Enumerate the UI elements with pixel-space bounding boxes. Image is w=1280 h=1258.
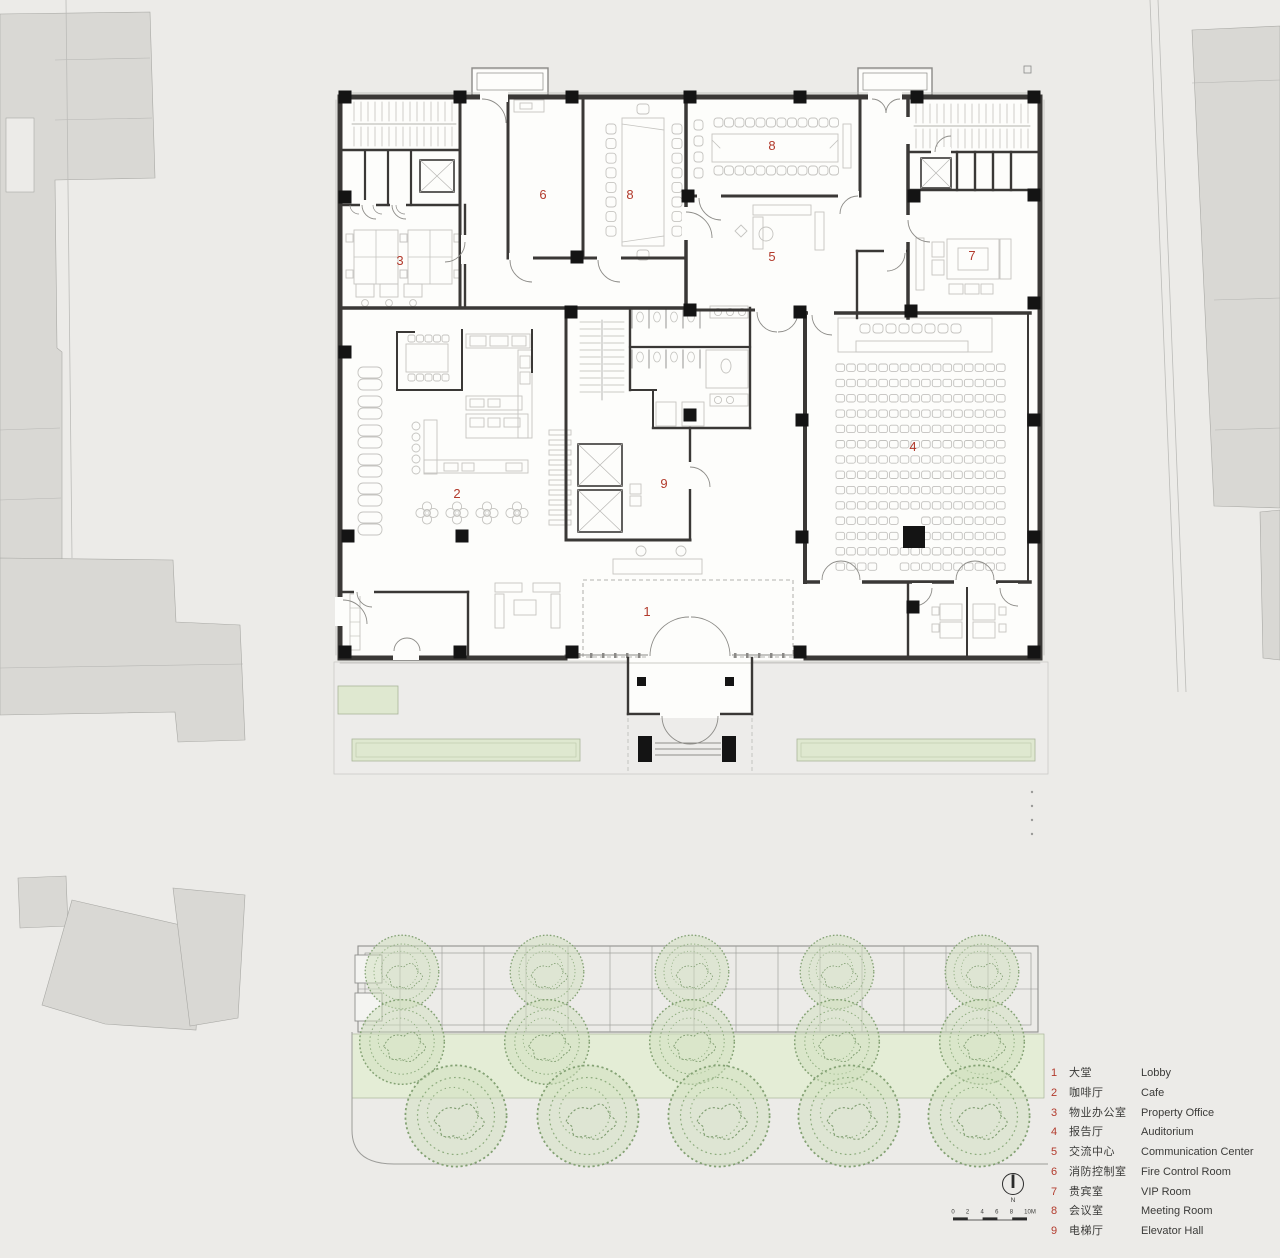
legend-row: 1 大堂 Lobby xyxy=(1051,1064,1266,1084)
legend-zh: 贵宾室 xyxy=(1069,1183,1141,1203)
legend: 1 大堂 Lobby 2 咖啡厅 Cafe 3 物业办公室 Property O… xyxy=(1051,1064,1266,1242)
legend-zh: 会议室 xyxy=(1069,1202,1141,1222)
tree-icon xyxy=(668,1065,769,1166)
room-label-meeting-b: 8 xyxy=(768,138,775,153)
site-plan-drawing: 1 2 3 4 5 6 7 8 8 9 N 0 2 4 6 8 10M 1 大堂… xyxy=(0,0,1280,1258)
tree-icon xyxy=(798,1065,899,1166)
legend-en: Cafe xyxy=(1141,1084,1266,1104)
legend-number: 5 xyxy=(1051,1143,1069,1163)
legend-number: 8 xyxy=(1051,1202,1069,1222)
room-label-auditorium: 4 xyxy=(909,439,916,454)
tree-icon xyxy=(405,1065,506,1166)
legend-number: 4 xyxy=(1051,1123,1069,1143)
legend-number: 6 xyxy=(1051,1163,1069,1183)
legend-row: 8 会议室 Meeting Room xyxy=(1051,1202,1266,1222)
legend-zh: 报告厅 xyxy=(1069,1123,1141,1143)
room-label-cafe: 2 xyxy=(453,486,460,501)
legend-row: 5 交流中心 Communication Center xyxy=(1051,1143,1266,1163)
legend-number: 3 xyxy=(1051,1104,1069,1124)
legend-number: 7 xyxy=(1051,1183,1069,1203)
room-label-fire-control: 6 xyxy=(539,187,546,202)
legend-row: 3 物业办公室 Property Office xyxy=(1051,1104,1266,1124)
tree-icon xyxy=(360,1000,445,1085)
legend-row: 4 报告厅 Auditorium xyxy=(1051,1123,1266,1143)
room-label-communication: 5 xyxy=(768,249,775,264)
legend-row: 7 贵宾室 VIP Room xyxy=(1051,1183,1266,1203)
tree-icon xyxy=(928,1065,1029,1166)
legend-en: Lobby xyxy=(1141,1064,1266,1084)
legend-en: Elevator Hall xyxy=(1141,1222,1266,1242)
gate-column xyxy=(722,736,736,762)
north-label: N xyxy=(1011,1197,1016,1204)
legend-en: Fire Control Room xyxy=(1141,1163,1266,1183)
room-label-vip: 7 xyxy=(968,248,975,263)
room-label-elevator-hall: 9 xyxy=(660,476,667,491)
legend-row: 6 消防控制室 Fire Control Room xyxy=(1051,1163,1266,1183)
legend-row: 2 咖啡厅 Cafe xyxy=(1051,1084,1266,1104)
legend-number: 1 xyxy=(1051,1064,1069,1084)
legend-number: 9 xyxy=(1051,1222,1069,1242)
tree-icon xyxy=(537,1065,638,1166)
gate-column xyxy=(638,736,652,762)
legend-en: Auditorium xyxy=(1141,1123,1266,1143)
tree-icon xyxy=(945,935,1019,1009)
tree-icon xyxy=(510,935,584,1009)
room-label-meeting-a: 8 xyxy=(626,187,633,202)
legend-zh: 电梯厅 xyxy=(1069,1222,1141,1242)
legend-en: Property Office xyxy=(1141,1104,1266,1124)
room-label-property: 3 xyxy=(396,253,403,268)
planter-box xyxy=(338,686,398,714)
tree-icon xyxy=(365,935,439,1009)
legend-zh: 交流中心 xyxy=(1069,1143,1141,1163)
planter-strip-left xyxy=(352,739,580,761)
legend-en: VIP Room xyxy=(1141,1183,1266,1203)
legend-number: 2 xyxy=(1051,1084,1069,1104)
legend-en: Communication Center xyxy=(1141,1143,1266,1163)
legend-en: Meeting Room xyxy=(1141,1202,1266,1222)
legend-row: 9 电梯厅 Elevator Hall xyxy=(1051,1222,1266,1242)
legend-zh: 物业办公室 xyxy=(1069,1104,1141,1124)
scale-end-label: 10M xyxy=(1024,1210,1036,1216)
tree-icon xyxy=(655,935,729,1009)
room-label-lobby: 1 xyxy=(643,604,650,619)
tree-icon xyxy=(800,935,874,1009)
legend-zh: 咖啡厅 xyxy=(1069,1084,1141,1104)
planter-strip-right xyxy=(797,739,1035,761)
legend-zh: 大堂 xyxy=(1069,1064,1141,1084)
legend-zh: 消防控制室 xyxy=(1069,1163,1141,1183)
